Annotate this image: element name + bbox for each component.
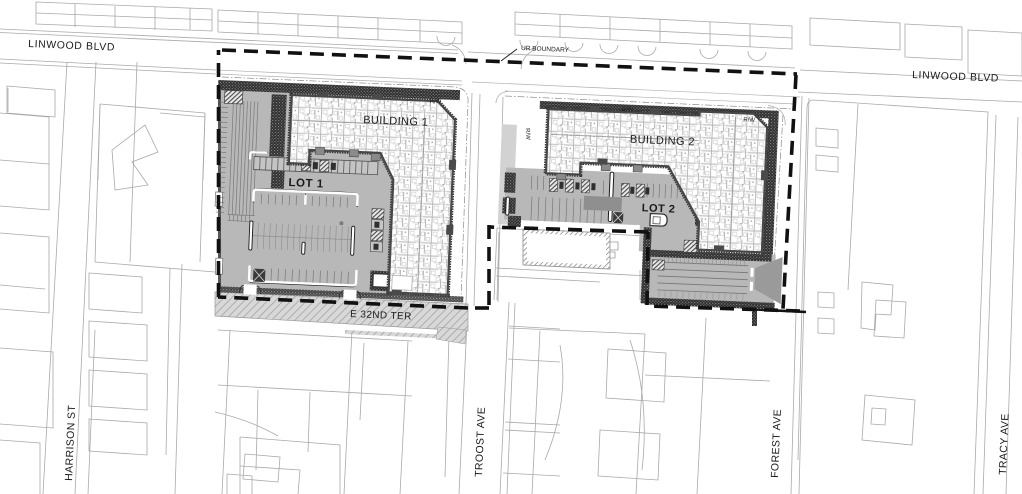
svg-text:LOT 1: LOT 1 — [288, 177, 324, 190]
svg-text:R/W: R/W — [524, 128, 531, 140]
svg-text:R/W: R/W — [743, 117, 755, 123]
svg-text:R/W: R/W — [622, 107, 634, 113]
svg-text:R/W: R/W — [429, 99, 441, 105]
